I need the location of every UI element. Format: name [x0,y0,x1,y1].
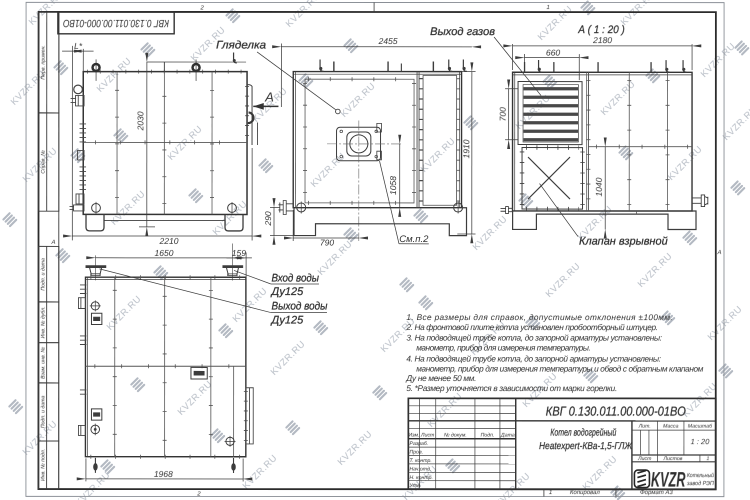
svg-text:1. Все размеры для справок, до: 1. Все размеры для справок, допустимые о… [406,312,673,322]
svg-text:Лит.: Лит. [638,423,651,429]
svg-text:159: 159 [232,248,246,258]
svg-text:1650: 1650 [155,248,174,258]
svg-text:Пров.: Пров. [409,450,423,456]
svg-text:5. *Размер уточняется в зависи: 5. *Размер уточняется в зависимости от м… [406,383,617,393]
svg-text:Котельный: Котельный [687,472,715,479]
svg-text:Ду125: Ду125 [269,314,304,326]
svg-text:1: 1 [546,4,549,11]
svg-text:290: 290 [263,211,273,226]
svg-text:Копировал: Копировал [570,489,600,496]
svg-text:Дата: Дата [500,432,515,438]
svg-text:1910: 1910 [461,139,471,158]
svg-text:Формат А3: Формат А3 [640,489,673,496]
svg-text:Н. контр.: Н. контр. [409,475,432,481]
svg-text:Масса: Масса [663,423,678,429]
svg-text:Нач.отд.: Нач.отд. [409,466,431,472]
svg-text:2030: 2030 [135,111,145,131]
svg-text:Справ. №: Справ. № [41,150,47,174]
svg-text:Heatexpert-КВа-1,5-ГЛЖ: Heatexpert-КВа-1,5-ГЛЖ [539,441,633,452]
svg-text:Инв. № дубл.: Инв. № дубл. [40,306,46,338]
svg-text:Разраб.: Разраб. [409,441,428,447]
svg-text:А: А [50,239,55,246]
svg-text:Листов: Листов [662,456,682,462]
svg-text:Изм.: Изм. [408,432,419,438]
svg-text:790: 790 [320,237,334,247]
svg-text:2210: 2210 [159,236,179,246]
svg-text:2. На фронтовой плите котла ус: 2. На фронтовой плите котла установлен п… [405,322,658,332]
svg-text:Перв. примен.: Перв. примен. [41,45,47,79]
svg-text:Т. контр.: Т. контр. [409,458,431,464]
svg-text:660: 660 [546,48,560,58]
svg-text:2: 2 [196,490,201,497]
svg-text:Подп. и дата: Подп. и дата [40,258,46,291]
svg-text:№ докум.: № докум. [444,432,467,438]
svg-text:Выход газов: Выход газов [430,26,495,38]
svg-text:1: 1 [549,489,552,496]
svg-text:А: А [264,90,274,105]
svg-text:KVZR: KVZR [651,469,686,492]
svg-text:Ду не менее 50 мм.: Ду не менее 50 мм. [405,373,476,383]
svg-text:1: 1 [706,456,709,462]
svg-text:манометр, прибор для измерения: манометр, прибор для измерения температу… [416,343,591,353]
svg-text:700: 700 [498,107,508,121]
svg-text:3. На подводящей трубе котла,: 3. На подводящей трубе котла, до запорно… [406,332,662,342]
svg-text:Ду125: Ду125 [269,286,304,298]
svg-text:1 : 20: 1 : 20 [691,437,711,446]
svg-text:1968: 1968 [154,469,173,479]
svg-text:КВГ 0.130.011.00.000-01ВО: КВГ 0.130.011.00.000-01ВО [63,17,169,29]
svg-text:1058: 1058 [388,176,398,195]
svg-text:Взам. инв. №: Взам. инв. № [40,346,46,378]
svg-text:4. На подводящей трубе котла,: 4. На подводящей трубе котла, до запорно… [406,353,661,363]
svg-text:Котел водогрейный: Котел водогрейный [550,428,616,439]
svg-text:Утв.: Утв. [409,483,421,489]
svg-text:Лист: Лист [420,432,435,438]
svg-text:2455: 2455 [378,36,398,46]
svg-text:Подп.: Подп. [481,432,495,438]
svg-text:завод РЭП: завод РЭП [686,480,714,487]
svg-text:Выход воды: Выход воды [271,300,327,312]
svg-text:Лист: Лист [637,456,652,462]
svg-text:2: 2 [199,4,204,11]
svg-text:Масштаб: Масштаб [688,423,713,429]
svg-text:КВГ 0.130.011.00.000-01ВО: КВГ 0.130.011.00.000-01ВО [546,404,686,419]
svg-text:A: A [716,249,721,256]
svg-text:Клапан взрывной: Клапан взрывной [579,236,668,248]
svg-text:См.п.2: См.п.2 [399,234,429,245]
svg-text:Подп. и дата: Подп. и дата [40,396,46,429]
svg-text:L*: L* [74,41,83,51]
svg-text:Инв. № подл.: Инв. № подл. [40,449,46,481]
svg-text:Гляделка: Гляделка [216,39,266,51]
svg-text:1040: 1040 [594,177,604,196]
svg-text:2180: 2180 [592,35,612,45]
svg-text:Вход воды: Вход воды [271,272,319,284]
